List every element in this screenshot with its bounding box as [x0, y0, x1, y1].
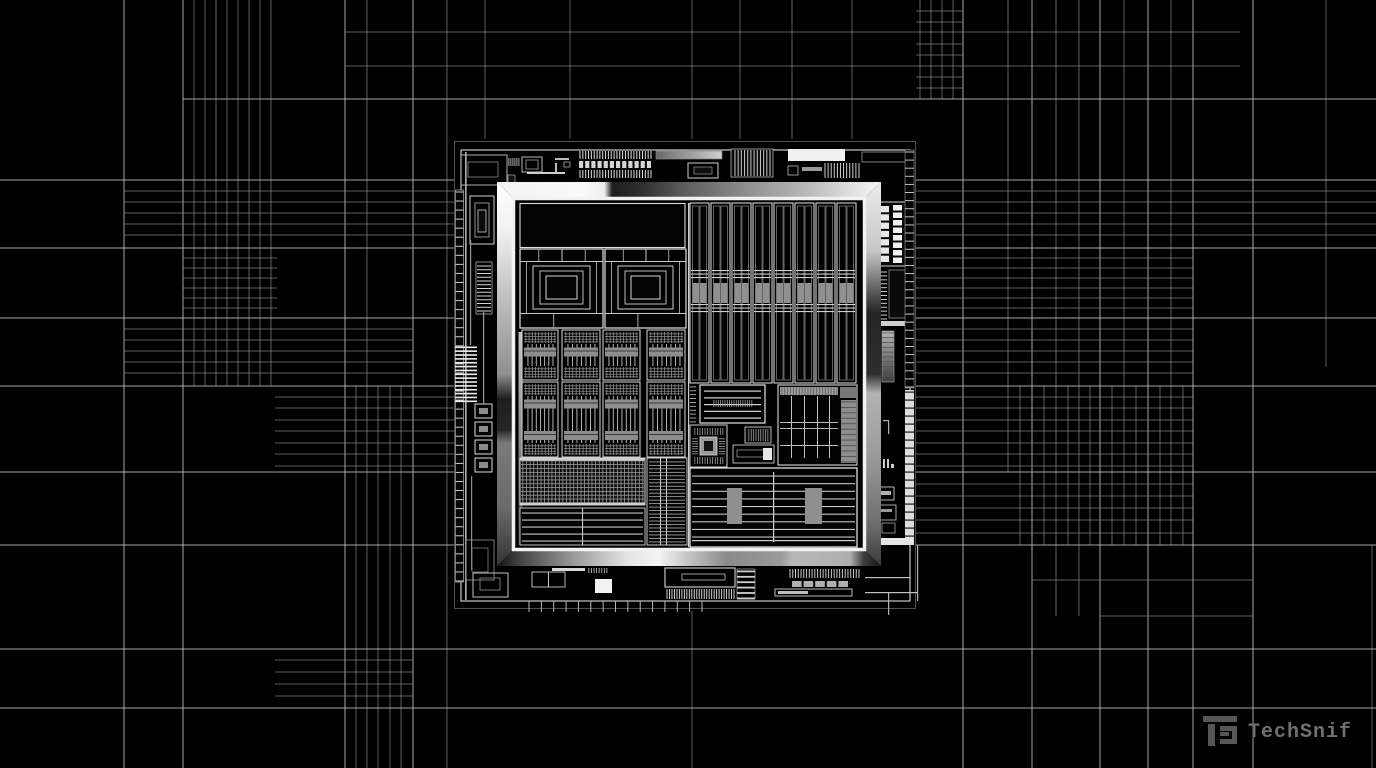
chip-die-illustration — [454, 139, 918, 615]
watermark-text: TechSnif — [1248, 723, 1352, 743]
circuit-wallpaper-svg — [0, 0, 1376, 768]
wallpaper-canvas: TechSnif — [0, 0, 1376, 768]
techsnif-monogram-icon — [1203, 714, 1239, 752]
watermark: TechSnif — [1203, 714, 1352, 752]
